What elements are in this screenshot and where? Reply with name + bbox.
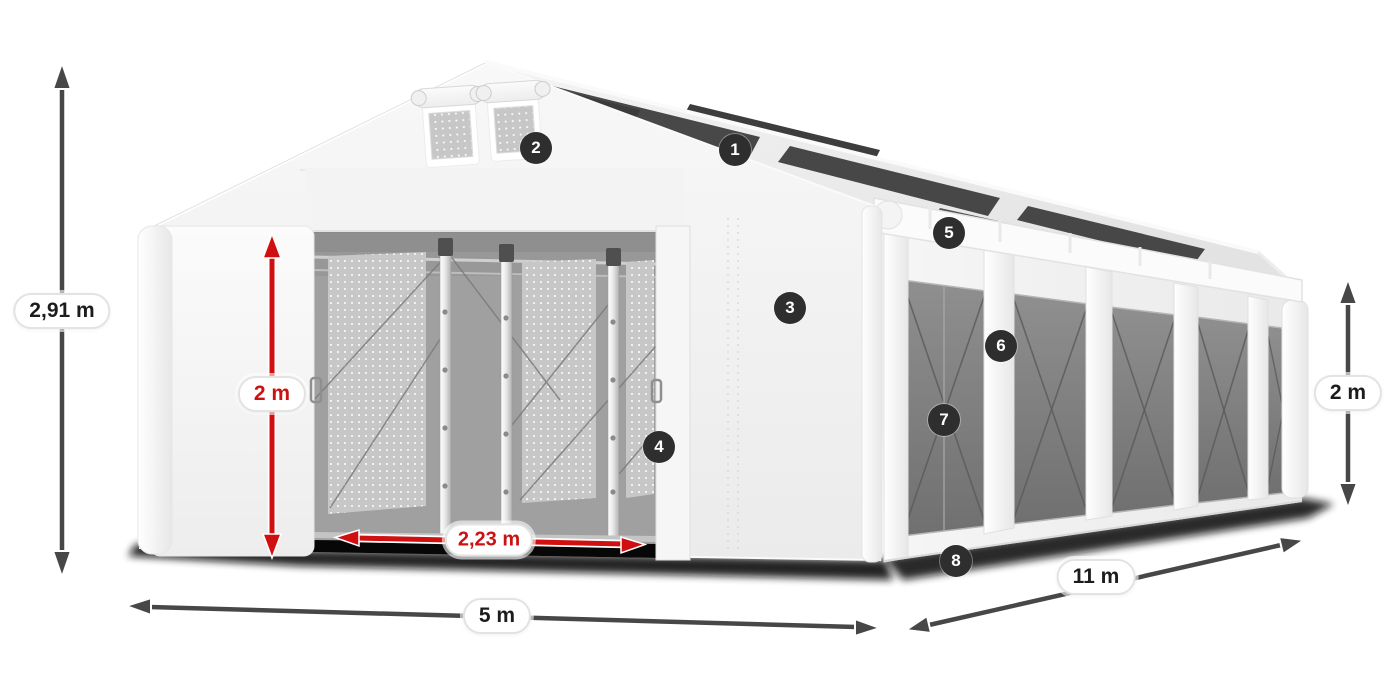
callout-badge-8: 8 <box>940 545 972 577</box>
entrance-opening <box>312 232 658 558</box>
callout-badge-6: 6 <box>985 330 1017 362</box>
dim-label-side-height: 2 m <box>1314 375 1382 411</box>
side-window <box>1012 294 1088 524</box>
side-window <box>1196 317 1250 503</box>
callout-badge-5: 5 <box>933 217 965 249</box>
callout-badge-1: 1 <box>719 134 751 166</box>
right-door <box>652 226 690 560</box>
entrance-lintel <box>305 168 684 232</box>
dim-label-front-width: 5 m <box>463 598 531 634</box>
side-window <box>1110 307 1176 513</box>
callout-badge-3: 3 <box>774 292 806 324</box>
dim-label-total-height: 2,91 m <box>13 293 110 329</box>
front-right-corner <box>862 206 882 562</box>
callout-badge-2: 2 <box>520 132 552 164</box>
interior-mesh-panel <box>522 259 596 503</box>
callout-badge-7: 7 <box>928 404 960 436</box>
interior-mesh-panel <box>626 260 654 498</box>
callout-badge-4: 4 <box>643 431 675 463</box>
front-left-corner <box>138 226 172 554</box>
dim-label-entrance-height: 2 m <box>238 376 306 412</box>
tent-illustration <box>0 0 1400 700</box>
dim-label-entrance-width: 2,23 m <box>445 524 533 557</box>
tent-dimension-diagram: 2,91 m 2 m 2,23 m 5 m 11 m 2 m 1 2 3 4 5… <box>0 0 1400 700</box>
dim-label-side-length: 11 m <box>1057 559 1136 595</box>
